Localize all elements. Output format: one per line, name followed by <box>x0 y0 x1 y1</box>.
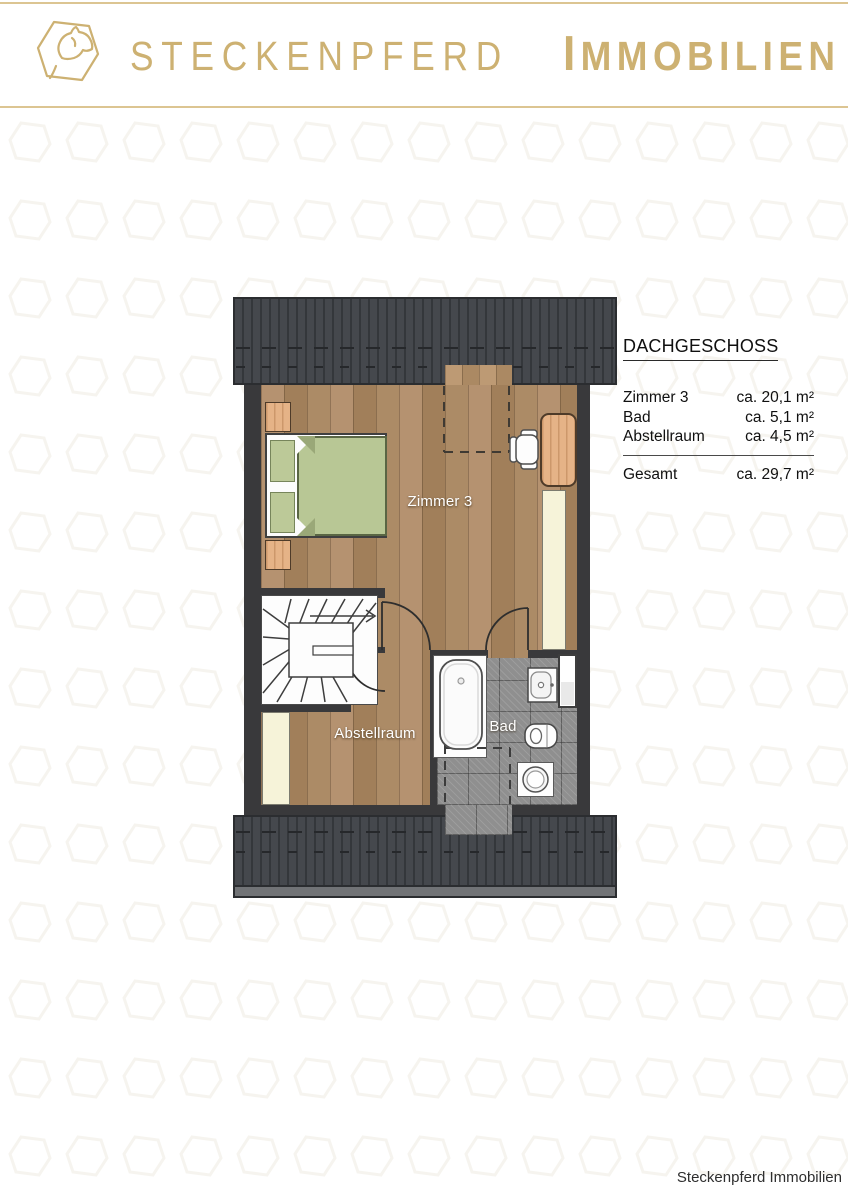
sink <box>528 668 557 702</box>
watermark-glyph <box>407 1132 451 1182</box>
watermark-glyph <box>407 1054 451 1104</box>
legend-room-name: Zimmer 3 <box>623 388 688 408</box>
watermark-glyph <box>8 898 52 948</box>
watermark-glyph <box>8 274 52 324</box>
watermark-glyph <box>635 508 679 558</box>
watermark-glyph <box>65 274 109 324</box>
watermark-glyph <box>464 196 508 246</box>
watermark-glyph <box>692 976 736 1026</box>
watermark-glyph <box>350 1054 394 1104</box>
watermark-glyph <box>692 508 736 558</box>
page: STECKENPFERD IMMOBILIEN <box>0 0 848 1200</box>
radiator <box>559 655 576 707</box>
watermark-glyph <box>407 118 451 168</box>
watermark-glyph <box>806 586 848 636</box>
watermark-glyph <box>578 898 622 948</box>
watermark-glyph <box>806 898 848 948</box>
watermark-glyph <box>692 196 736 246</box>
legend-title: DACHGESCHOSS <box>623 336 778 361</box>
watermark-glyph <box>692 586 736 636</box>
floorplan: Zimmer 3 Abstellraum Bad <box>233 297 617 898</box>
watermark-glyph <box>692 898 736 948</box>
watermark-glyph <box>122 664 166 714</box>
legend-total-label: Gesamt <box>623 465 677 485</box>
watermark-glyph <box>806 508 848 558</box>
watermark-glyph <box>65 352 109 402</box>
watermark-glyph <box>65 1132 109 1182</box>
watermark-glyph <box>806 274 848 324</box>
watermark-glyph <box>8 352 52 402</box>
watermark-glyph <box>407 898 451 948</box>
watermark-glyph <box>749 274 793 324</box>
room-label-bad: Bad <box>478 718 528 735</box>
watermark-glyph <box>179 742 223 792</box>
watermark-glyph <box>749 586 793 636</box>
watermark-glyph <box>8 586 52 636</box>
brand-primary-text: STECKENPFERD <box>130 33 509 80</box>
brand-secondary-text: IMMOBILIEN <box>563 26 840 82</box>
office-chair <box>510 430 538 469</box>
watermark-glyph <box>749 898 793 948</box>
watermark-glyph <box>635 976 679 1026</box>
watermark-glyph <box>8 196 52 246</box>
watermark-glyph <box>65 586 109 636</box>
watermark-glyph <box>293 976 337 1026</box>
watermark-glyph <box>806 118 848 168</box>
watermark-glyph <box>65 820 109 870</box>
legend: DACHGESCHOSS Zimmer 3 ca. 20,1 m² Bad ca… <box>623 336 814 484</box>
watermark-glyph <box>65 118 109 168</box>
watermark-glyph <box>350 976 394 1026</box>
watermark-glyph <box>635 196 679 246</box>
watermark-glyph <box>635 898 679 948</box>
watermark-glyph <box>464 898 508 948</box>
watermark-glyph <box>122 508 166 558</box>
watermark-glyph <box>635 820 679 870</box>
stair-direction-arrow <box>310 610 375 622</box>
watermark-glyph <box>122 820 166 870</box>
watermark-glyph <box>806 664 848 714</box>
plan-linework <box>233 297 617 898</box>
watermark-glyph <box>65 1054 109 1104</box>
watermark-glyph <box>635 1054 679 1104</box>
watermark-glyph <box>806 742 848 792</box>
watermark-glyph <box>236 118 280 168</box>
legend-divider <box>623 455 814 456</box>
room-label-zimmer3: Zimmer 3 <box>383 493 497 510</box>
watermark-glyph <box>749 118 793 168</box>
watermark-glyph <box>122 1054 166 1104</box>
legend-room-area: ca. 20,1 m² <box>736 388 814 408</box>
watermark-glyph <box>635 742 679 792</box>
watermark-glyph <box>407 196 451 246</box>
watermark-glyph <box>236 898 280 948</box>
watermark-glyph <box>65 664 109 714</box>
legend-room-area: ca. 5,1 m² <box>745 408 814 428</box>
watermark-glyph <box>179 586 223 636</box>
watermark-glyph <box>293 118 337 168</box>
watermark-glyph <box>65 976 109 1026</box>
watermark-glyph <box>65 742 109 792</box>
watermark-glyph <box>122 352 166 402</box>
watermark-glyph <box>350 898 394 948</box>
dormer-dashed-outline <box>444 386 509 452</box>
header: STECKENPFERD IMMOBILIEN <box>0 0 848 108</box>
watermark-glyph <box>464 1132 508 1182</box>
watermark-glyph <box>692 1054 736 1104</box>
legend-room-name: Bad <box>623 408 651 428</box>
header-top-rule <box>0 2 848 4</box>
watermark-glyph <box>8 118 52 168</box>
watermark-glyph <box>464 976 508 1026</box>
watermark-glyph <box>65 898 109 948</box>
watermark-glyph <box>179 430 223 480</box>
watermark-glyph <box>521 976 565 1026</box>
watermark-glyph <box>749 820 793 870</box>
watermark-glyph <box>179 898 223 948</box>
watermark-glyph <box>692 742 736 792</box>
watermark-glyph <box>749 196 793 246</box>
watermark-glyph <box>293 898 337 948</box>
watermark-glyph <box>236 1132 280 1182</box>
watermark-glyph <box>578 976 622 1026</box>
watermark-glyph <box>65 196 109 246</box>
watermark-glyph <box>806 196 848 246</box>
watermark-glyph <box>692 820 736 870</box>
watermark-glyph <box>236 1054 280 1104</box>
watermark-glyph <box>635 664 679 714</box>
watermark-glyph <box>806 976 848 1026</box>
washing-machine-drum <box>523 767 548 792</box>
legend-row: Zimmer 3 ca. 20,1 m² <box>623 388 814 408</box>
watermark-glyph <box>179 1054 223 1104</box>
watermark-glyph <box>8 508 52 558</box>
header-bottom-rule <box>0 106 848 108</box>
watermark-glyph <box>635 1132 679 1182</box>
watermark-glyph <box>122 1132 166 1182</box>
legend-room-name: Abstellraum <box>623 427 705 447</box>
stair-landing-edge <box>313 646 353 655</box>
watermark-glyph <box>749 1054 793 1104</box>
brand-wordmark: STECKENPFERD IMMOBILIEN <box>130 26 848 82</box>
watermark-glyph <box>179 196 223 246</box>
watermark-glyph <box>464 1054 508 1104</box>
watermark-glyph <box>122 274 166 324</box>
watermark-glyph <box>578 196 622 246</box>
watermark-glyph <box>749 742 793 792</box>
watermark-glyph <box>806 1054 848 1104</box>
watermark-glyph <box>8 742 52 792</box>
watermark-glyph <box>407 976 451 1026</box>
watermark-glyph <box>350 118 394 168</box>
watermark-glyph <box>806 820 848 870</box>
watermark-glyph <box>635 118 679 168</box>
watermark-glyph <box>521 1054 565 1104</box>
watermark-glyph <box>749 508 793 558</box>
bathtub <box>440 660 482 749</box>
watermark-glyph <box>350 196 394 246</box>
watermark-glyph <box>578 1054 622 1104</box>
watermark-glyph <box>65 508 109 558</box>
watermark-glyph <box>179 820 223 870</box>
watermark-glyph <box>293 196 337 246</box>
watermark-glyph <box>179 274 223 324</box>
legend-row: Abstellraum ca. 4,5 m² <box>623 427 814 447</box>
watermark-glyph <box>122 118 166 168</box>
footer-credit: Steckenpferd Immobilien <box>677 1169 842 1186</box>
legend-total-area: ca. 29,7 m² <box>736 465 814 485</box>
watermark-glyph <box>521 1132 565 1182</box>
legend-total-row: Gesamt ca. 29,7 m² <box>623 465 814 485</box>
brand-logo-hexagon-horse-icon <box>34 14 102 94</box>
watermark-glyph <box>521 898 565 948</box>
watermark-glyph <box>122 430 166 480</box>
watermark-glyph <box>65 430 109 480</box>
legend-room-area: ca. 4,5 m² <box>745 427 814 447</box>
watermark-glyph <box>8 820 52 870</box>
watermark-glyph <box>749 664 793 714</box>
watermark-glyph <box>8 430 52 480</box>
watermark-glyph <box>635 586 679 636</box>
watermark-glyph <box>8 664 52 714</box>
legend-row: Bad ca. 5,1 m² <box>623 408 814 428</box>
watermark-glyph <box>236 196 280 246</box>
watermark-glyph <box>179 508 223 558</box>
watermark-glyph <box>578 1132 622 1182</box>
watermark-glyph <box>122 976 166 1026</box>
watermark-glyph <box>122 742 166 792</box>
watermark-glyph <box>122 196 166 246</box>
watermark-glyph <box>749 976 793 1026</box>
watermark-glyph <box>293 1132 337 1182</box>
watermark-glyph <box>692 118 736 168</box>
watermark-glyph <box>179 664 223 714</box>
watermark-glyph <box>350 1132 394 1182</box>
watermark-glyph <box>521 196 565 246</box>
watermark-glyph <box>578 118 622 168</box>
watermark-glyph <box>122 898 166 948</box>
room-label-abstellraum: Abstellraum <box>315 725 435 742</box>
watermark-glyph <box>179 976 223 1026</box>
legend-rows: Zimmer 3 ca. 20,1 m² Bad ca. 5,1 m² Abst… <box>623 388 814 484</box>
watermark-glyph <box>179 352 223 402</box>
watermark-glyph <box>8 1132 52 1182</box>
watermark-glyph <box>692 664 736 714</box>
watermark-glyph <box>635 274 679 324</box>
watermark-glyph <box>179 118 223 168</box>
watermark-glyph <box>293 1054 337 1104</box>
watermark-glyph <box>464 118 508 168</box>
watermark-glyph <box>8 1054 52 1104</box>
watermark-glyph <box>179 1132 223 1182</box>
watermark-glyph <box>236 976 280 1026</box>
watermark-glyph <box>122 586 166 636</box>
watermark-glyph <box>521 118 565 168</box>
watermark-glyph <box>692 274 736 324</box>
roof-dashed-lines <box>236 348 614 852</box>
watermark-glyph <box>8 976 52 1026</box>
toilet <box>525 724 557 748</box>
